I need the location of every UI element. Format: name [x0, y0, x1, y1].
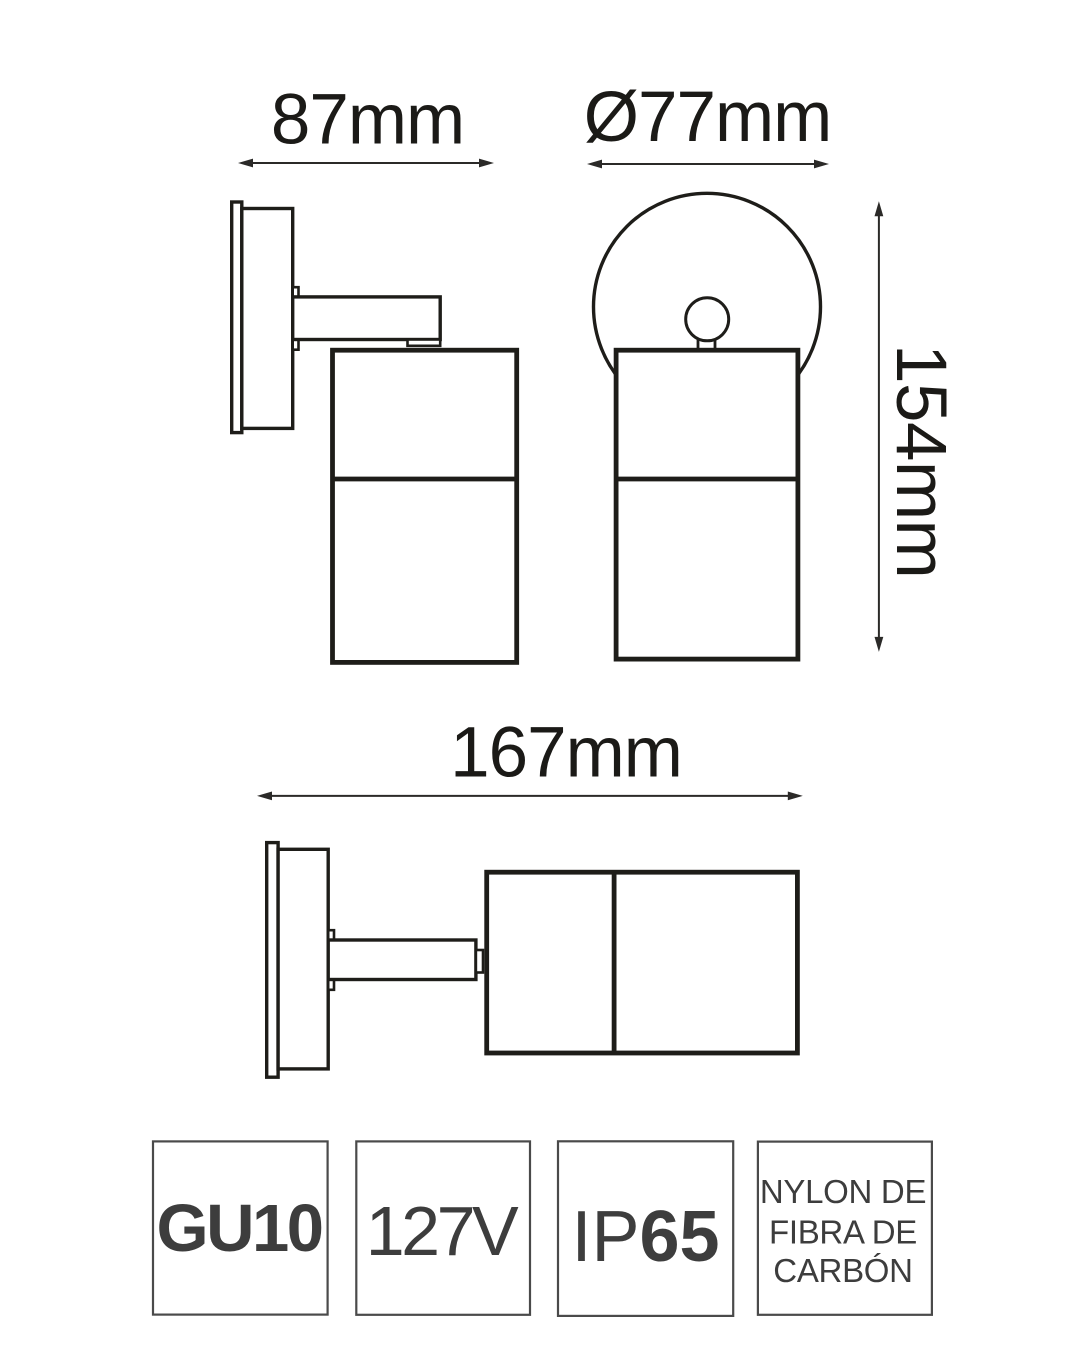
svg-text:IP65: IP65 — [571, 1197, 719, 1277]
svg-text:87mm: 87mm — [271, 81, 464, 160]
svg-text:154mm: 154mm — [881, 344, 960, 578]
svg-text:FIBRA DE: FIBRA DE — [769, 1214, 917, 1251]
svg-text:NYLON DE: NYLON DE — [760, 1173, 926, 1210]
svg-text:Ø77mm: Ø77mm — [584, 78, 832, 157]
svg-text:167mm: 167mm — [450, 714, 682, 793]
svg-text:CARBÓN: CARBÓN — [773, 1252, 912, 1289]
svg-text:127V: 127V — [366, 1192, 519, 1270]
svg-text:GU10: GU10 — [156, 1191, 321, 1266]
